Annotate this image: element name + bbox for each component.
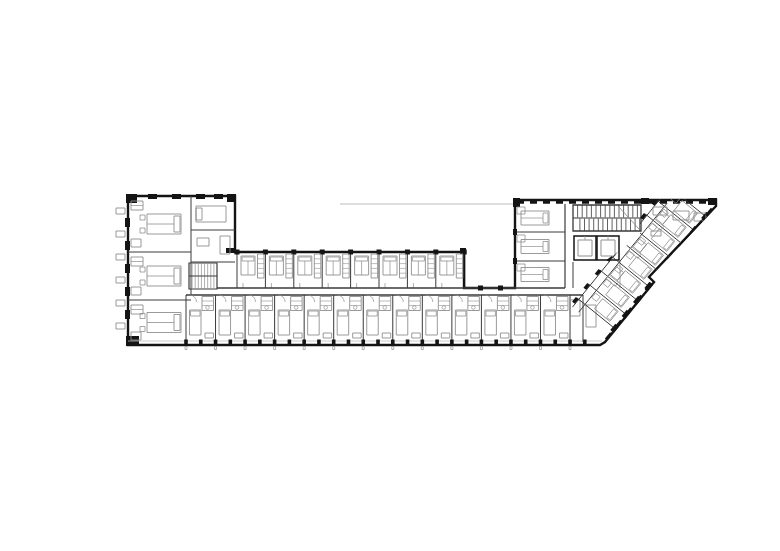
room-unit (269, 254, 292, 288)
room-unit (249, 295, 273, 338)
room-unit (278, 295, 302, 338)
elevator-shaft (574, 236, 596, 260)
room-unit (517, 207, 549, 225)
bottom-row-units (128, 295, 602, 350)
room-unit (131, 305, 181, 340)
room-unit (544, 295, 568, 338)
room-unit (396, 295, 420, 338)
room-unit (337, 295, 361, 338)
room-unit (241, 254, 264, 288)
room-unit (355, 254, 378, 288)
room-unit (644, 223, 675, 251)
elevator-shaft (597, 236, 619, 260)
service-core (513, 202, 713, 288)
room-unit (298, 254, 321, 288)
floor-plan-drawing (0, 0, 780, 551)
room-unit (514, 295, 538, 338)
room-unit (190, 295, 214, 338)
room-unit (440, 254, 463, 288)
room-unit (131, 257, 181, 295)
room-unit (517, 235, 549, 254)
room-unit (621, 251, 652, 279)
room-unit (383, 254, 406, 288)
room-unit (411, 254, 434, 288)
stair-core (573, 205, 641, 231)
room-unit (367, 295, 391, 338)
room-unit (599, 279, 630, 307)
middle-row-units (235, 250, 467, 289)
room-unit (517, 264, 549, 282)
room-unit (326, 254, 349, 288)
angled-wing (572, 186, 711, 339)
room-unit (587, 293, 618, 321)
room-unit (308, 295, 332, 338)
corridor (186, 286, 583, 296)
floor-plan-page (0, 0, 780, 551)
room-unit (426, 295, 450, 338)
room-unit (131, 201, 181, 247)
room-unit (219, 295, 243, 338)
room-unit (485, 295, 509, 338)
room-unit (455, 295, 479, 338)
stair-core (189, 263, 217, 289)
